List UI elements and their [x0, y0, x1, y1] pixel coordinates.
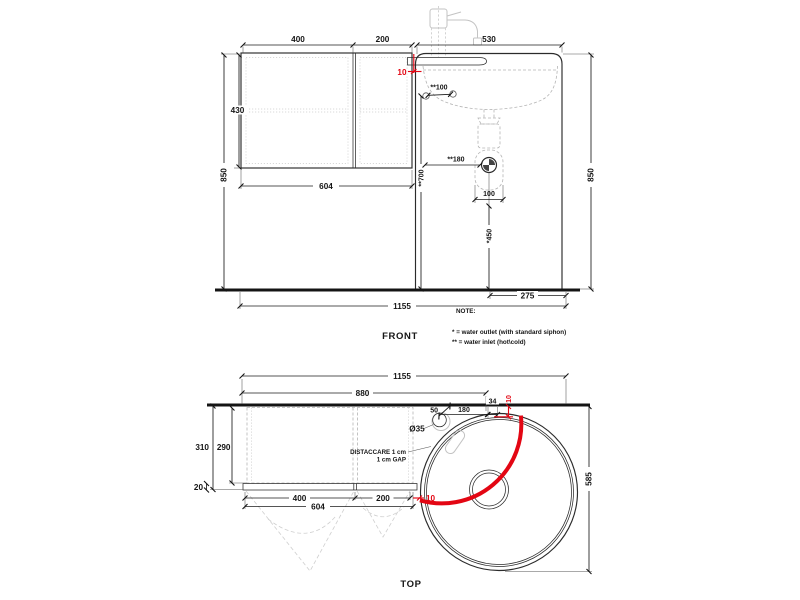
counter-slab [408, 58, 487, 66]
dim-front-sink-width: 530 [482, 35, 496, 44]
dim-front-total-height-left: 850 [220, 168, 229, 182]
technical-drawing-canvas: 400 200 530 850 430 604 **100 [0, 0, 800, 600]
top-view-label: TOP [400, 579, 421, 590]
faucet-spout [447, 20, 478, 38]
dim-front-left-door-width: 400 [291, 35, 305, 44]
dim-front-cabinet-width: 604 [319, 182, 333, 191]
dim-front-gap: 10 [397, 68, 407, 77]
dim-front-right-door-width: 200 [376, 35, 390, 44]
sink-inner-ring [427, 420, 572, 565]
top-sink-circle [420, 414, 578, 571]
dim-top-faucet-offset: 50 [430, 408, 438, 415]
note-block: NOTE: * = water outlet (with standard si… [452, 308, 566, 346]
dim-top-right-door-width: 200 [376, 494, 390, 503]
gap-note-line-1: DISTACCARE 1 cm [350, 449, 406, 456]
door-front-edge [243, 484, 417, 491]
dim-top-wall-gap: 34 [489, 399, 497, 406]
dim-top-door-thickness: 20 [194, 483, 204, 492]
sink-inner-ring [425, 418, 574, 567]
dim-top-gap: 10 [506, 395, 513, 403]
top-view: 1155 880 310 290 20 400 200 [194, 372, 594, 591]
note-title: NOTE: [456, 308, 476, 315]
dim-front-drain-to-edge: 275 [521, 292, 535, 301]
left-door-inner [246, 58, 348, 164]
dim-front-total-width: 1155 [393, 302, 411, 311]
dim-front-total-height-right: 850 [587, 168, 596, 182]
dim-top-total-width: 1155 [393, 372, 411, 381]
inlet-circle-right [450, 91, 456, 97]
dim-top-gap-bottom: 10 [426, 494, 436, 503]
dim-front-outlet-height: *450 [487, 229, 494, 244]
dim-front-inlet-spacing: **100 [430, 85, 447, 92]
top-faucet [432, 413, 467, 456]
dim-front-drain-spacing: 100 [483, 191, 495, 198]
inlet-circle-left [423, 93, 429, 99]
dim-top-sink-depth: 585 [585, 472, 594, 486]
front-water-points [423, 91, 497, 206]
dim-top-cabinet-depth: 290 [217, 443, 231, 452]
dim-top-left-door-width: 400 [293, 494, 307, 503]
dim-top-total-depth: 310 [195, 443, 209, 452]
top-dimensions: 1155 880 310 290 20 400 200 [194, 372, 594, 572]
dim-front-outlet-offset: **180 [447, 157, 464, 164]
siphon-bottle-hidden [478, 124, 500, 148]
dim-top-faucet-to-wall: 180 [458, 407, 470, 414]
dim-front-cabinet-height: 430 [231, 106, 245, 115]
note-line-1: * = water outlet (with standard siphon) [452, 329, 566, 336]
note-line-2: ** = water inlet (hot\cold) [452, 339, 526, 346]
sink-outer-circle [421, 414, 578, 571]
gap-note-line-2: 1 cm GAP [377, 457, 406, 464]
front-view: 400 200 530 850 430 604 **100 [215, 6, 596, 346]
dim-top-cabinet-width: 604 [311, 503, 325, 512]
dim-front-inlet-height: **700 [419, 169, 426, 186]
front-faucet [430, 6, 482, 57]
cabinet-body-hidden [247, 408, 413, 484]
vanity-sink-drawing: 400 200 530 850 430 604 **100 [0, 0, 800, 600]
front-view-label: FRONT [382, 331, 418, 342]
faucet-outlet [474, 38, 482, 45]
front-cabinet [241, 53, 412, 168]
front-dimensions: 400 200 530 850 430 604 **100 [220, 35, 596, 311]
drain-flange-hidden [478, 118, 500, 124]
dim-top-faucet-hole-diameter: Ø35 [409, 425, 425, 434]
dim-top-width-to-gap: 880 [356, 389, 370, 398]
cabinet-outline [241, 53, 412, 168]
faucet-lever [447, 12, 461, 16]
